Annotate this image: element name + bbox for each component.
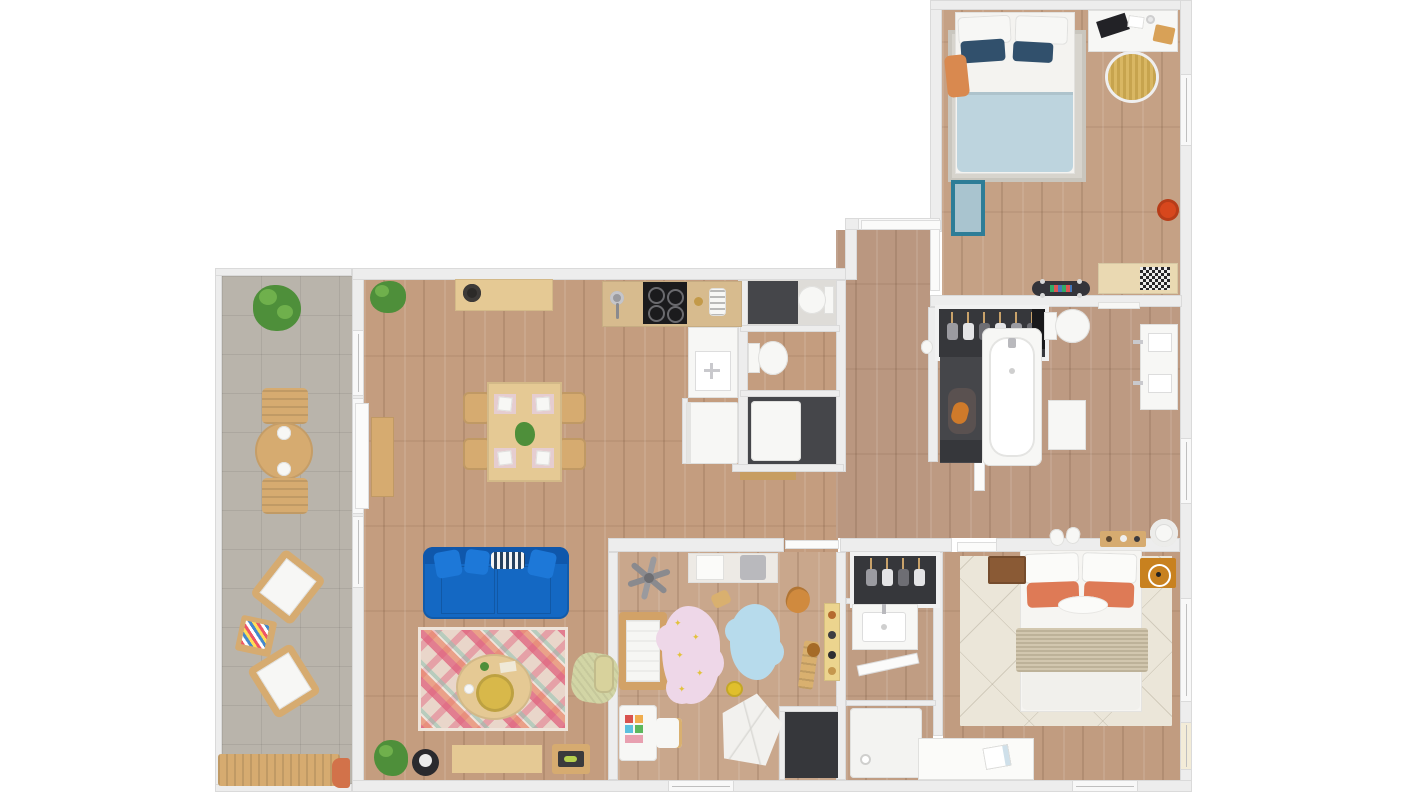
wood-tray <box>1100 531 1146 547</box>
desk-cup <box>1146 15 1155 24</box>
bottom-wall <box>352 780 1192 792</box>
toilet-bowl <box>798 286 826 314</box>
placemat <box>532 448 554 468</box>
rug-star: ✦ <box>678 686 686 695</box>
balcony-left-wall <box>215 268 222 792</box>
storage-basket <box>594 655 614 693</box>
wall-knob <box>921 340 933 354</box>
basket-white <box>696 555 724 580</box>
washing-machine <box>686 402 738 464</box>
dining-chair <box>463 392 489 424</box>
plate <box>277 462 291 476</box>
toaster <box>709 288 726 316</box>
black-bowl <box>463 284 481 302</box>
tub-basin <box>989 337 1035 457</box>
master-door-leaf <box>958 543 996 551</box>
pink-cloud-rug: ✦ ✦ ✦ ✦ ✦ <box>662 606 720 704</box>
faucet-handle <box>1133 340 1143 344</box>
skateboard-wheel <box>1077 293 1082 298</box>
tray-item <box>1120 535 1127 542</box>
rug-star: ✦ <box>692 634 700 643</box>
striped-pillow <box>491 552 525 569</box>
ensuite-closet <box>850 552 940 608</box>
sink-faucet <box>882 604 886 614</box>
plant-leaf <box>379 745 393 757</box>
terracotta-pot <box>332 758 350 788</box>
balcony-top-wall <box>215 268 352 276</box>
burner <box>648 287 665 304</box>
entry-door-leaf <box>862 221 940 229</box>
balcony-chair-south <box>262 478 308 514</box>
placemat <box>494 448 516 468</box>
kids-window <box>668 780 734 792</box>
desk <box>1088 10 1178 52</box>
paper <box>1127 15 1145 29</box>
shower-drain <box>860 754 871 765</box>
sink-vanity <box>688 327 738 398</box>
burner <box>667 306 684 323</box>
toy <box>828 651 836 659</box>
vacuum-center <box>419 754 432 767</box>
lion-toy <box>807 643 820 657</box>
bath-column-bottom-wall <box>732 464 844 472</box>
corridor-wall-mid <box>840 538 952 552</box>
notebook <box>982 744 1011 770</box>
toy <box>828 611 836 619</box>
shower-enclosure-wall <box>846 700 936 706</box>
closet-mat <box>940 440 982 462</box>
skateboard <box>1032 281 1090 296</box>
balcony-door-leaf <box>356 404 368 508</box>
placemat <box>494 394 516 414</box>
hanger <box>947 312 958 344</box>
robot-vacuum <box>412 749 439 776</box>
toy <box>828 631 836 639</box>
wall-console <box>371 417 394 497</box>
plate <box>535 450 550 465</box>
balcony-window-upper <box>352 330 364 396</box>
shower-threshold <box>740 472 796 480</box>
ensuite-sink-vanity <box>852 604 918 650</box>
placemat <box>532 394 554 414</box>
rug-star: ✦ <box>696 670 704 679</box>
checkered-cushion <box>1140 267 1170 290</box>
dining-table <box>487 382 562 482</box>
blue-cloud-rug <box>730 604 780 680</box>
plate <box>497 450 513 466</box>
creamer <box>464 684 474 694</box>
cloud-lobe <box>758 638 784 666</box>
shoe <box>1065 526 1082 545</box>
hanger <box>898 558 909 590</box>
laptop <box>1096 13 1130 38</box>
rug-star: ✦ <box>674 620 682 629</box>
plate <box>277 426 291 440</box>
drawer-toy <box>625 725 633 733</box>
bedroom-1-door-leaf <box>931 230 939 290</box>
plant-leaf <box>259 289 277 305</box>
plate <box>536 397 551 412</box>
knit-throw <box>1016 628 1148 672</box>
tub-faucet <box>1008 338 1016 348</box>
round-cushion <box>1058 596 1108 614</box>
navy-pillow <box>1013 41 1054 63</box>
sink-faucet-cross <box>704 369 720 372</box>
cloud-lobe <box>725 618 751 644</box>
magazine-table <box>235 615 278 658</box>
pillow <box>1023 552 1079 584</box>
kitchen-sideboard <box>455 279 553 311</box>
plate <box>497 396 512 411</box>
skateboard-wheel <box>1040 293 1045 298</box>
nightstand-right <box>1140 558 1176 588</box>
hanger <box>914 558 925 590</box>
laundry-pile <box>948 388 976 434</box>
changing-table <box>619 705 657 761</box>
pillow <box>1015 15 1069 45</box>
plant-centerpiece <box>515 422 535 446</box>
kids-chair <box>656 718 682 748</box>
living-top-wall <box>352 268 848 280</box>
coffee-table <box>456 654 532 720</box>
white-bowl <box>1150 519 1178 547</box>
wc-partition-wall <box>740 325 840 332</box>
nightstand-left <box>988 556 1026 584</box>
burner <box>667 289 684 306</box>
laundry-orange <box>949 400 970 425</box>
drawer-toy <box>625 715 633 723</box>
shoe <box>1048 528 1065 548</box>
bedroom-1-left-wall <box>930 0 942 232</box>
toilet-bowl <box>1055 309 1090 343</box>
balcony-window-lower <box>352 516 364 588</box>
tub-drain <box>1009 368 1015 374</box>
rug-star: ✦ <box>676 652 684 661</box>
hanger <box>866 558 877 590</box>
ensuite-shower-tray <box>850 708 922 778</box>
skateboard-art <box>1050 285 1072 292</box>
hanger <box>963 312 974 344</box>
card <box>499 661 516 673</box>
tray-item <box>1134 536 1140 542</box>
sofa-pillow <box>527 549 558 580</box>
living-plant <box>374 740 408 776</box>
balcony-chair-north <box>262 388 308 424</box>
plant-leaf <box>277 305 293 319</box>
sink-basin <box>1148 374 1172 393</box>
dining-chair <box>560 392 586 424</box>
alarm-clock <box>1148 564 1171 587</box>
bath-column-right-wall <box>836 280 846 472</box>
drawer-toy <box>635 725 643 733</box>
bathroom-toilet <box>1044 308 1092 344</box>
bedroom-1-bench <box>1098 263 1178 294</box>
plant-leaf <box>375 285 389 297</box>
bedroom-1-bed <box>955 12 1075 174</box>
faucet-handle <box>1133 381 1143 385</box>
corridor-wall-west <box>608 538 784 552</box>
magazine <box>241 621 269 649</box>
gold-tray <box>476 674 514 712</box>
cooktop <box>643 282 687 324</box>
bath-stool <box>1048 400 1086 450</box>
balcony-table <box>255 422 313 480</box>
red-pouf <box>1157 199 1179 221</box>
kids-door-leaf <box>786 541 838 548</box>
top-wall <box>930 0 1192 10</box>
notepad <box>1152 24 1175 45</box>
double-sink-vanity <box>1140 324 1178 410</box>
navy-pillow <box>960 38 1005 63</box>
gold-jar <box>694 297 703 306</box>
toy-shelf <box>824 603 840 681</box>
clock-dot <box>1156 572 1161 577</box>
skateboard-wheel <box>1040 279 1045 284</box>
cactus-pot <box>480 662 489 671</box>
toy <box>828 667 836 675</box>
bedroom-1-window <box>1180 74 1192 146</box>
wc-dark-counter <box>748 281 798 324</box>
toilet-mid <box>748 340 788 376</box>
orange-cushion <box>944 54 970 98</box>
crib <box>619 612 667 690</box>
burner <box>648 305 665 322</box>
shower-tray <box>751 401 801 461</box>
radio-label <box>564 756 577 762</box>
yellow-toy <box>726 681 743 697</box>
sofa <box>423 547 569 619</box>
blue-mat <box>951 180 985 236</box>
hanger-row <box>854 556 936 590</box>
dining-chair <box>463 438 489 470</box>
towel-rail <box>1098 302 1140 309</box>
drawer-toy <box>625 735 643 743</box>
shoes-pair <box>1050 527 1084 547</box>
sink-basin <box>1148 333 1172 352</box>
sink-drain <box>881 624 887 630</box>
hanger <box>882 558 893 590</box>
storage-closet-floor <box>785 712 838 778</box>
master-window-bottom <box>1072 780 1138 792</box>
kids-wall-shelf <box>688 553 778 583</box>
balcony-plant <box>253 285 301 331</box>
kitchen-plant <box>370 281 406 313</box>
tv-bench <box>452 745 542 773</box>
master-right-door <box>1180 722 1192 770</box>
toilet-bowl <box>758 341 788 375</box>
balcony-bench <box>218 754 340 786</box>
drawer-toy <box>635 715 643 723</box>
bathroom-window <box>1180 438 1192 504</box>
radio-table <box>552 744 590 774</box>
sofa-pillow <box>433 549 463 579</box>
pillow <box>1081 552 1137 584</box>
faucet-hose <box>616 303 619 319</box>
wc-toilet <box>798 284 834 316</box>
sofa-pillow <box>464 549 491 576</box>
crib-mattress <box>626 620 660 682</box>
tray-item <box>1106 536 1112 542</box>
basket-gray <box>740 555 766 580</box>
duvet <box>957 92 1073 172</box>
floor-plan-canvas: ✦ ✦ ✦ ✦ ✦ <box>0 0 1422 800</box>
master-desk <box>918 738 1034 780</box>
shower-partition-wall <box>740 390 840 397</box>
wicker-chair <box>1108 54 1156 100</box>
dining-chair <box>560 438 586 470</box>
skateboard-wheel <box>1077 279 1082 284</box>
bathtub <box>982 328 1042 466</box>
master-window-right <box>1180 598 1192 702</box>
